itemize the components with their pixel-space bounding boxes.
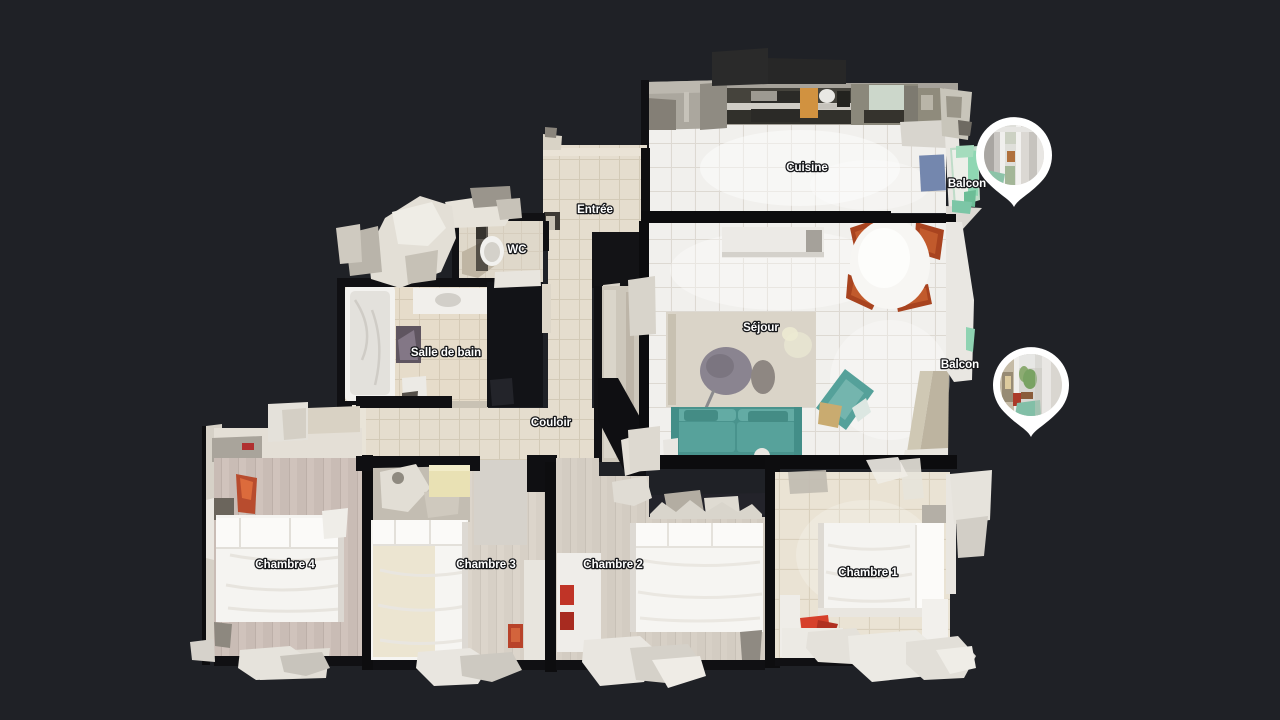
svg-text:Balcon: Balcon — [941, 359, 979, 371]
svg-text:Balcon: Balcon — [948, 178, 986, 190]
svg-text:Couloir: Couloir — [531, 417, 572, 429]
svg-text:Chambre 4: Chambre 4 — [255, 559, 315, 571]
svg-text:Chambre 2: Chambre 2 — [583, 559, 642, 571]
svg-text:Entrée: Entrée — [577, 204, 613, 216]
svg-text:Séjour: Séjour — [743, 322, 779, 334]
svg-text:Salle de bain: Salle de bain — [411, 347, 481, 359]
svg-text:Chambre 1: Chambre 1 — [838, 567, 898, 579]
svg-text:Cuisine: Cuisine — [786, 162, 828, 174]
svg-text:Chambre 3: Chambre 3 — [456, 559, 515, 571]
svg-text:WC: WC — [507, 244, 526, 256]
